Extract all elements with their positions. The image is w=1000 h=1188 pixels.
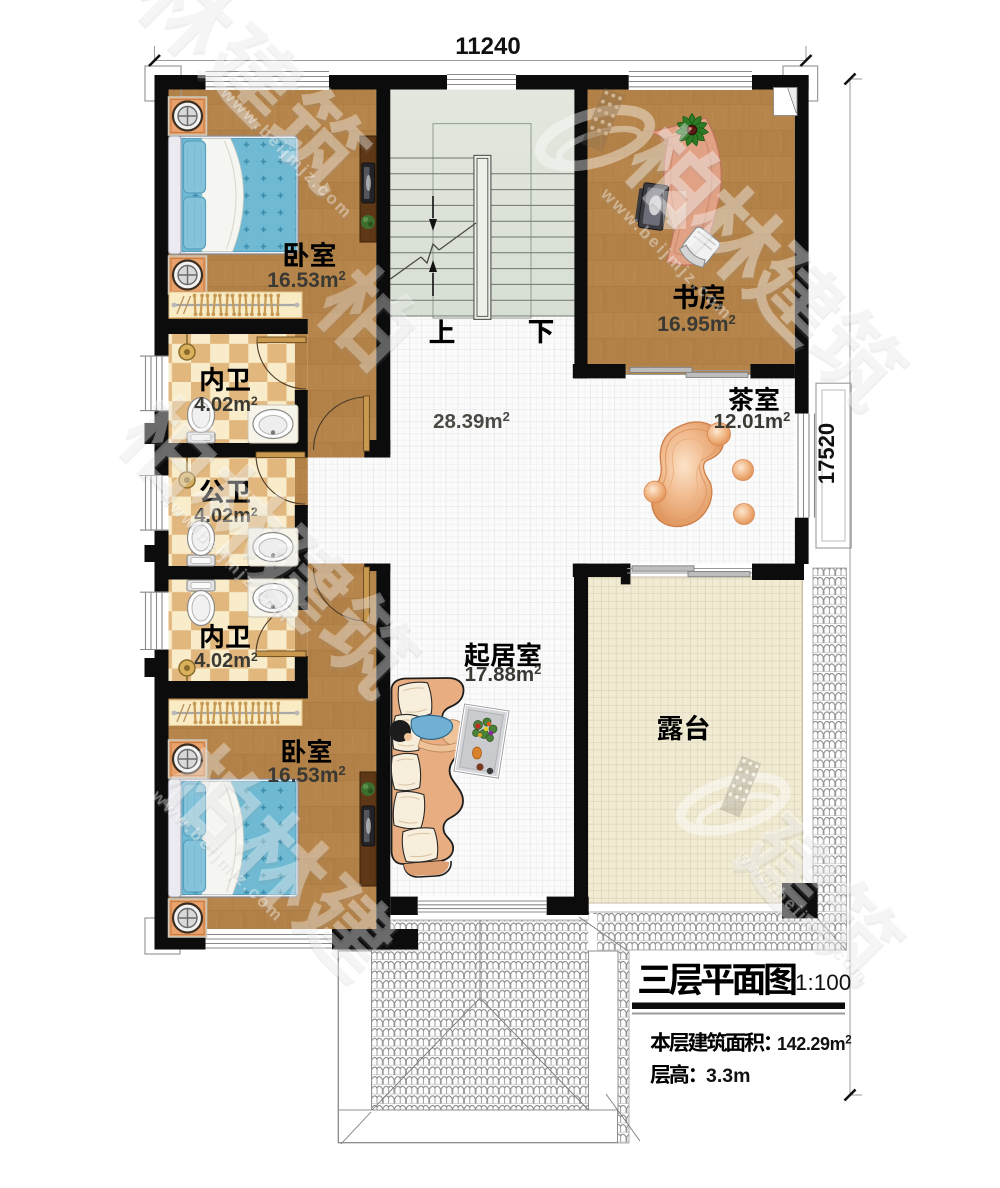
svg-text:1:100: 1:100 [795,970,851,995]
svg-text:28.39m2: 28.39m2 [433,409,510,433]
svg-text:142.29m2: 142.29m2 [777,1034,851,1054]
svg-text:3.3m: 3.3m [706,1065,750,1087]
svg-text:12.01m2: 12.01m2 [714,409,791,433]
svg-text:11240: 11240 [455,33,520,60]
svg-text:17520: 17520 [814,423,839,484]
svg-text:16.53m2: 16.53m2 [267,268,345,292]
svg-text:17.88m2: 17.88m2 [465,662,542,686]
svg-text:4.02m2: 4.02m2 [194,394,258,416]
svg-text:16.53m2: 16.53m2 [267,763,345,787]
svg-text:4.02m2: 4.02m2 [194,650,258,672]
